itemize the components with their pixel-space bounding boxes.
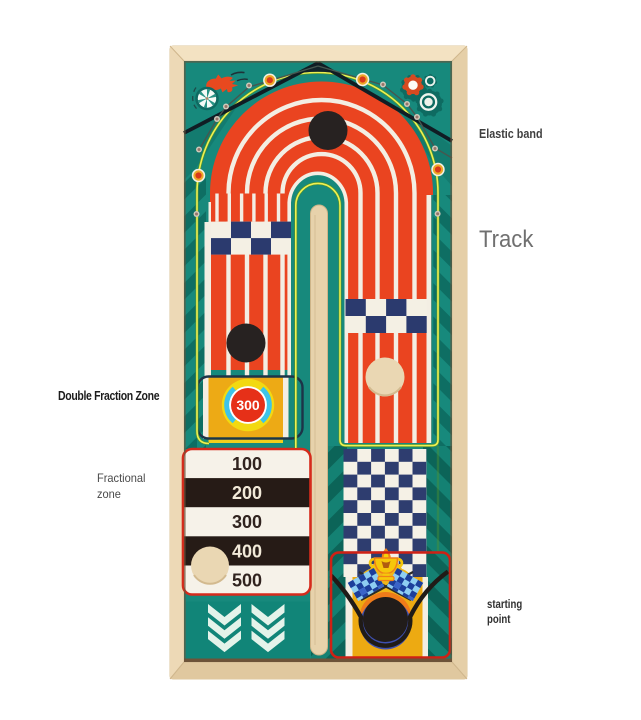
svg-text:400: 400 [232,541,262,561]
svg-text:100: 100 [232,454,262,474]
svg-text:300: 300 [236,397,260,413]
svg-text:200: 200 [232,483,262,503]
svg-text:500: 500 [232,571,262,591]
svg-text:300: 300 [232,512,262,532]
